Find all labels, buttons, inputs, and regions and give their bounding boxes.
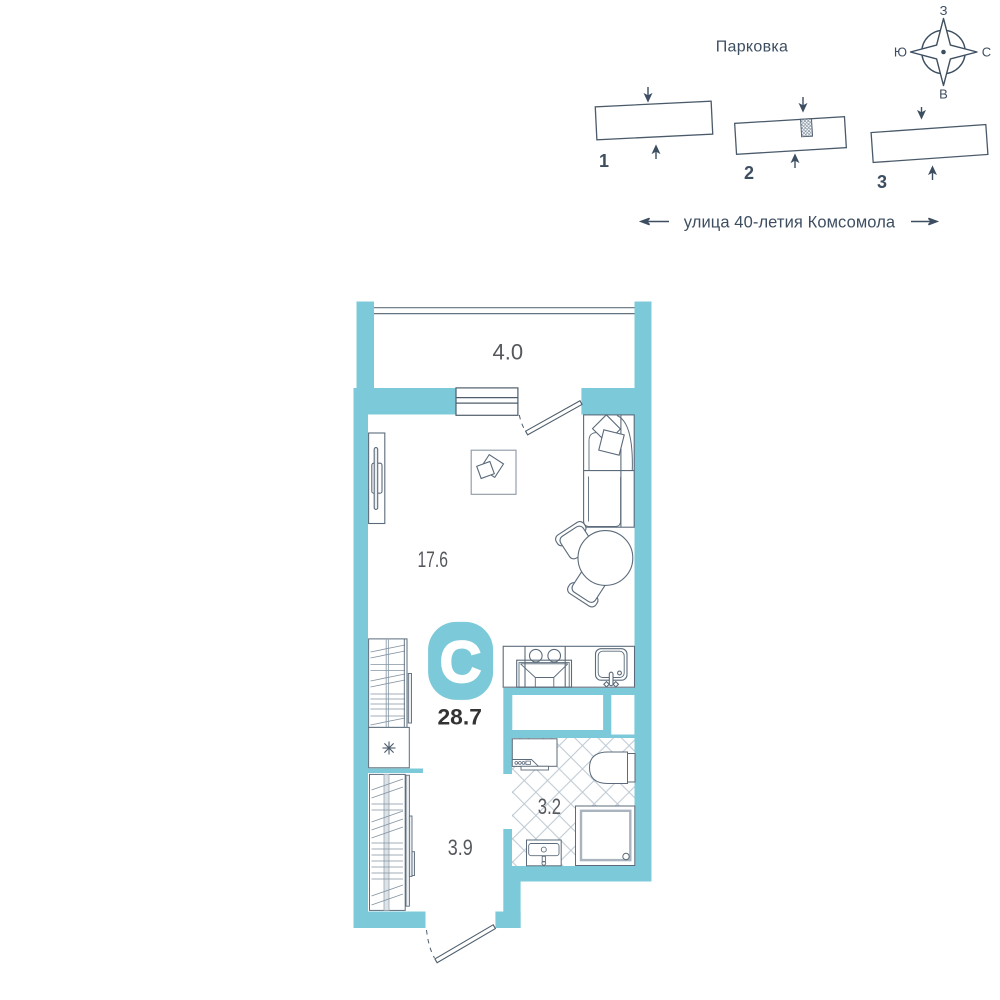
svg-text:2: 2 bbox=[744, 163, 754, 183]
svg-text:З: З bbox=[940, 3, 948, 18]
svg-text:28.7: 28.7 bbox=[438, 705, 482, 730]
svg-text:4.0: 4.0 bbox=[493, 340, 524, 365]
svg-text:С: С bbox=[440, 630, 482, 695]
svg-text:3: 3 bbox=[877, 172, 887, 192]
svg-text:С: С bbox=[982, 45, 991, 60]
svg-text:улица 40-летия Комсомола: улица 40-летия Комсомола bbox=[684, 214, 896, 232]
svg-text:Ю: Ю bbox=[894, 45, 907, 60]
svg-text:17.6: 17.6 bbox=[417, 547, 448, 572]
svg-text:3.2: 3.2 bbox=[538, 794, 561, 819]
svg-text:В: В bbox=[939, 87, 948, 102]
svg-text:3.9: 3.9 bbox=[448, 835, 473, 860]
svg-text:1: 1 bbox=[599, 151, 609, 171]
svg-text:Парковка: Парковка bbox=[716, 39, 789, 56]
